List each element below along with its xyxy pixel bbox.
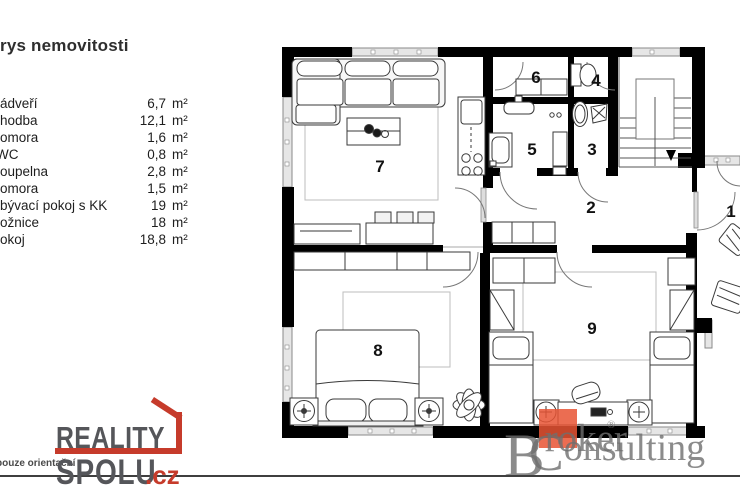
area-unit: m² xyxy=(172,232,188,247)
area-unit: m² xyxy=(172,198,188,213)
armchair-1 xyxy=(718,223,740,257)
corner-sofa xyxy=(292,59,445,125)
logo-cz-text: .cz xyxy=(145,460,180,491)
pantry-shelf xyxy=(516,79,567,95)
logo-spolu-text: SPOLU xyxy=(56,453,156,493)
room-area: 0,8 xyxy=(118,147,166,162)
laundry-basket xyxy=(591,104,607,123)
room-name: okoj xyxy=(0,232,25,247)
legend-row: hodba12,1m² xyxy=(0,112,200,129)
room-number-4: 4 xyxy=(591,71,601,90)
room-name: ádveří xyxy=(0,96,38,111)
double-bed xyxy=(313,330,423,426)
area-unit: m² xyxy=(172,130,188,145)
dining-set xyxy=(366,212,434,244)
room-name: oupelna xyxy=(0,164,48,179)
nightstand-lamp-right xyxy=(415,398,443,425)
single-bed-left xyxy=(489,332,533,423)
room-area: 18,8 xyxy=(118,232,166,247)
legend-row: oupelna2,8m² xyxy=(0,163,200,180)
bathroom-cabinet xyxy=(553,132,567,175)
wardrobe xyxy=(294,252,470,270)
cabinet-top-right xyxy=(668,258,695,285)
consulting-initial: C xyxy=(529,425,564,482)
staircase xyxy=(619,57,692,167)
room-number-6: 6 xyxy=(531,68,540,87)
single-bed-right xyxy=(650,332,694,423)
nightstand-lamp-left xyxy=(290,398,318,425)
room-area: 19 xyxy=(118,198,166,213)
room-number-7: 7 xyxy=(375,157,384,176)
room-name: omora xyxy=(0,130,38,145)
legend-row: bývací pokoj s KK19m² xyxy=(0,197,200,214)
legend-row: okoj18,8m² xyxy=(0,231,200,248)
room-number-8: 8 xyxy=(373,341,382,360)
room-legend: ádveří6,7m² hodba12,1m² omora1,6m² WC0,8… xyxy=(0,95,200,248)
room-name: hodba xyxy=(0,113,38,128)
armchair-2 xyxy=(711,280,740,314)
area-unit: m² xyxy=(172,215,188,230)
shower-unit xyxy=(489,133,512,167)
room-number-1: 1 xyxy=(726,202,735,221)
area-unit: m² xyxy=(172,181,188,196)
kitchen-counter xyxy=(458,97,485,175)
room-number-9: 9 xyxy=(587,319,596,338)
room-number-5: 5 xyxy=(527,140,536,159)
room-name: bývací pokoj s KK xyxy=(0,198,107,213)
legend-row: ožnice18m² xyxy=(0,214,200,231)
logo-reality-text: REALITY xyxy=(56,420,165,456)
area-unit: m² xyxy=(172,96,188,111)
legend-row: omora1,6m² xyxy=(0,129,200,146)
sideboard xyxy=(294,224,360,244)
area-unit: m² xyxy=(172,113,188,128)
hall-cabinet xyxy=(492,222,555,243)
plant xyxy=(453,389,486,422)
washing-machine xyxy=(573,102,588,127)
room-number-2: 2 xyxy=(586,198,595,217)
page-title: rys nemovitosti xyxy=(0,36,129,56)
legend-row: ádveří6,7m² xyxy=(0,95,200,112)
room-name: WC xyxy=(0,147,19,162)
nightstand-lamp-9-right xyxy=(627,400,652,425)
room-area: 18 xyxy=(118,215,166,230)
legend-row: omora1,5m² xyxy=(0,180,200,197)
cabinet-top-left xyxy=(493,258,555,283)
room-name: ožnice xyxy=(0,215,39,230)
kitchen-island xyxy=(347,118,400,145)
room-area: 6,7 xyxy=(118,96,166,111)
stair-direction-arrow xyxy=(666,150,676,161)
legend-row: WC0,8m² xyxy=(0,146,200,163)
wardrobe-left xyxy=(490,290,514,330)
room-area: 2,8 xyxy=(118,164,166,179)
room-area: 1,5 xyxy=(118,181,166,196)
room-area: 12,1 xyxy=(118,113,166,128)
broker-watermark-word2: Consulting xyxy=(529,428,705,480)
consulting-rest: onsulting xyxy=(564,427,705,469)
area-unit: m² xyxy=(172,147,188,162)
room-area: 1,6 xyxy=(118,130,166,145)
wardrobe-right xyxy=(670,290,694,330)
room-name: omora xyxy=(0,181,38,196)
area-unit: m² xyxy=(172,164,188,179)
room-number-3: 3 xyxy=(587,140,596,159)
